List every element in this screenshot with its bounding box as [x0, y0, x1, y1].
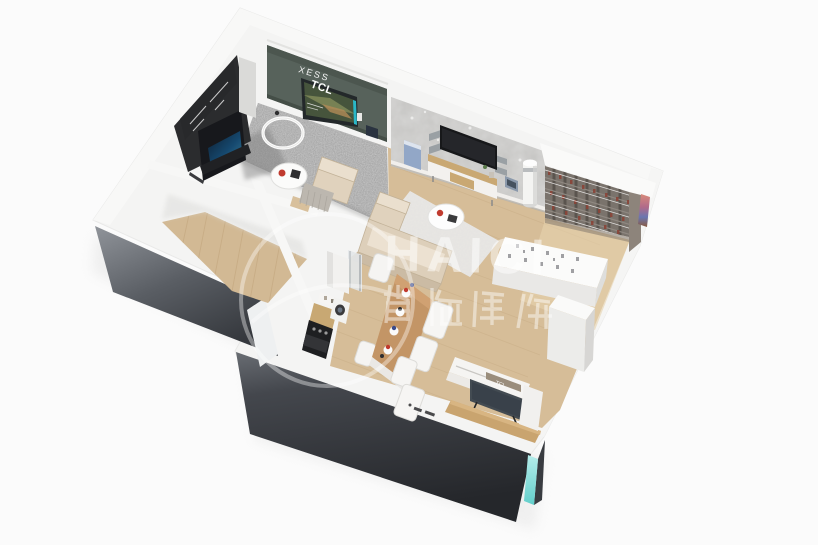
svg-text:HAICI: HAICI	[384, 225, 552, 285]
